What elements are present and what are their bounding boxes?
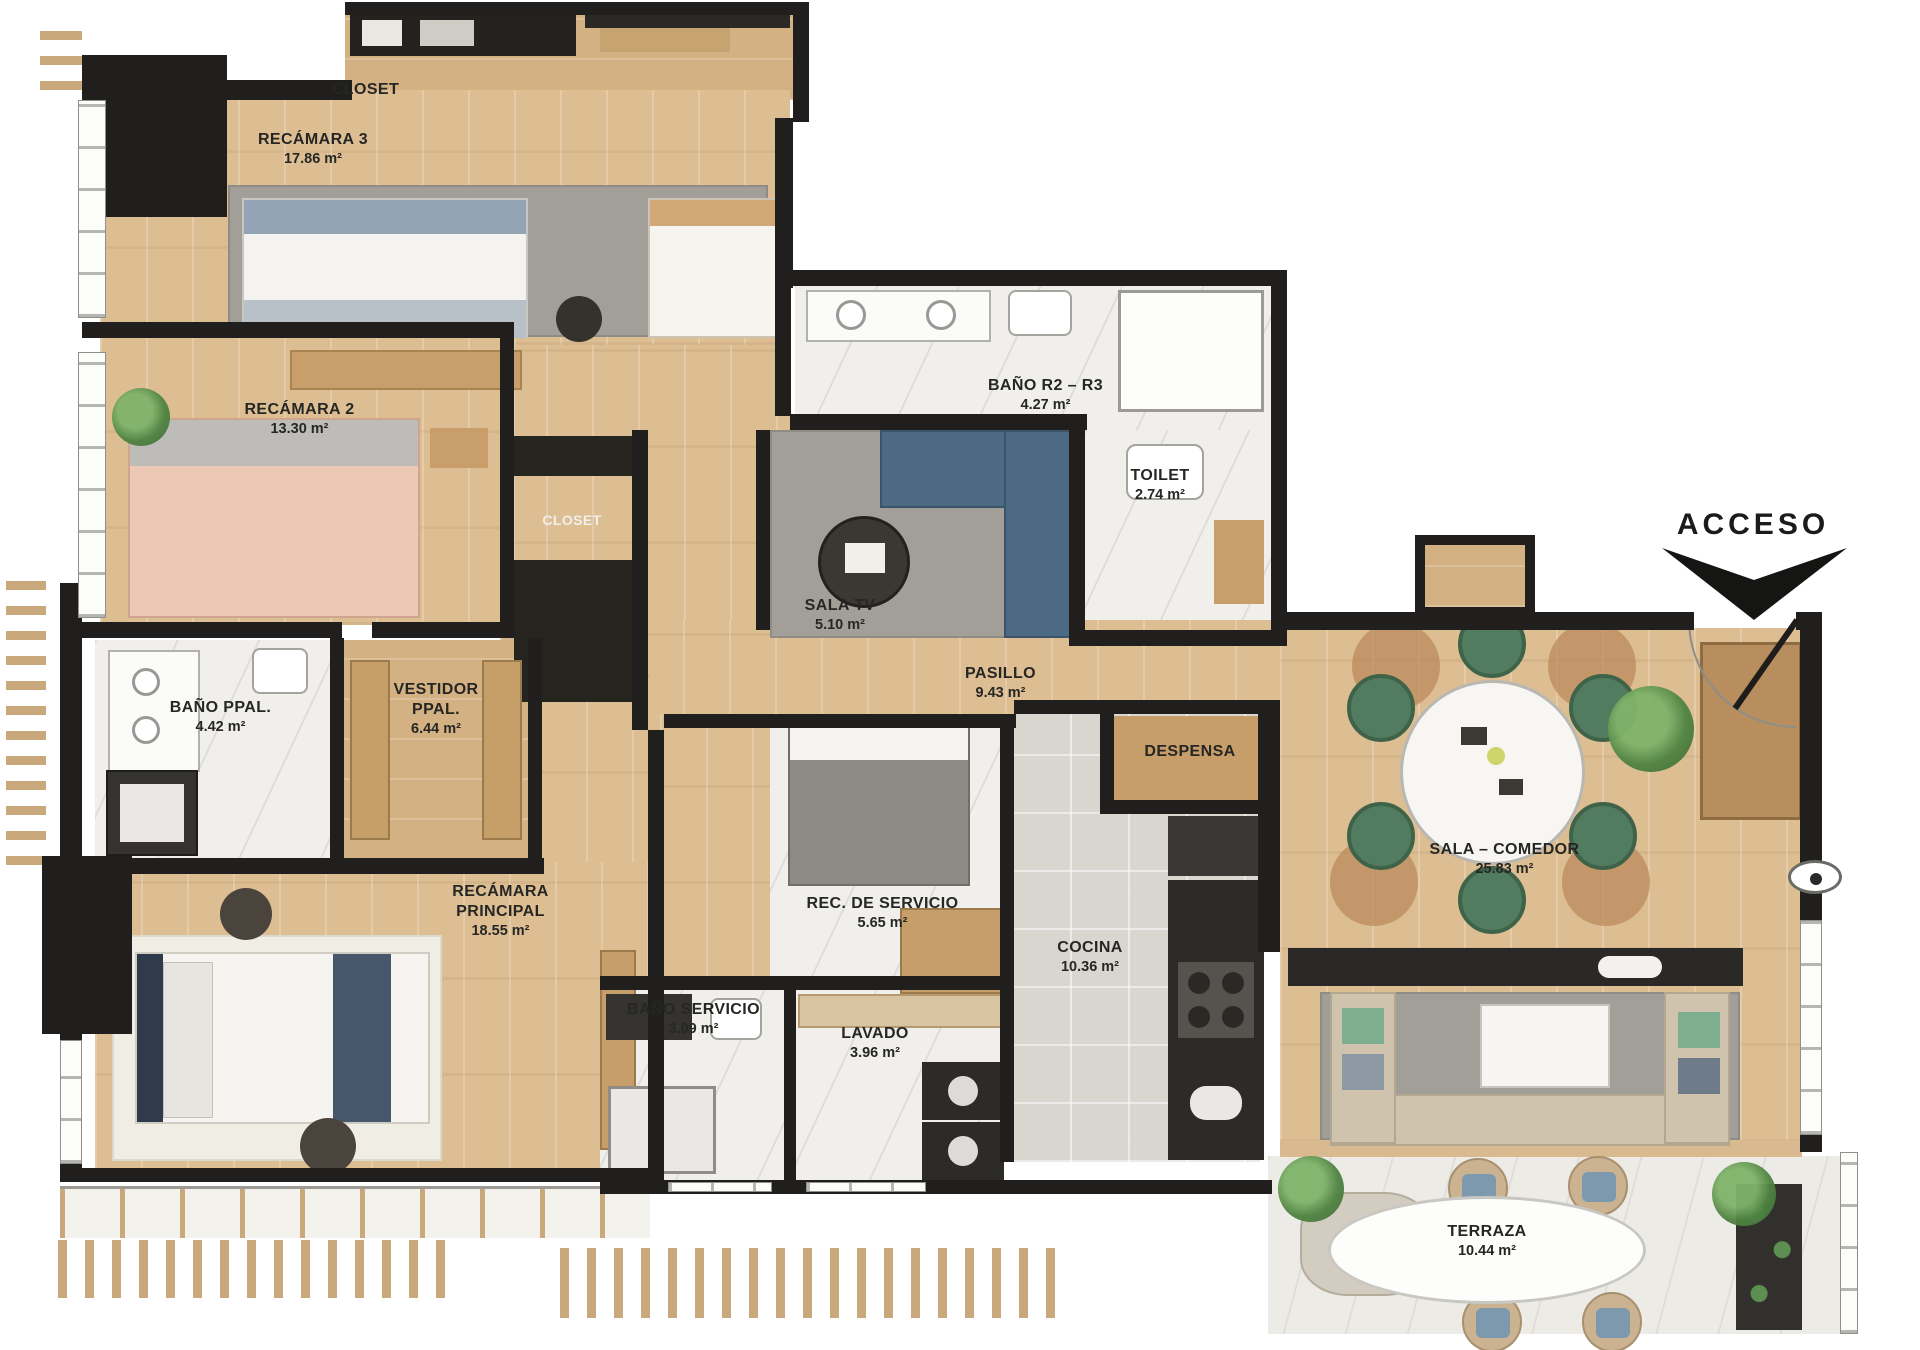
room-name: TOILET: [1131, 466, 1190, 486]
headboard: [244, 200, 526, 234]
room-area: 4.27 m²: [1021, 397, 1071, 413]
pillow: [1342, 1054, 1384, 1090]
headboard: [137, 954, 163, 1122]
wall: [1069, 430, 1085, 646]
entry-bench: [1425, 545, 1525, 607]
label-closet-r3: CLOSET: [318, 80, 413, 100]
pergola-slats-left: [6, 575, 46, 865]
room-area: 25.83 m²: [1475, 861, 1533, 877]
washer: [922, 1062, 1004, 1120]
sink-basin: [926, 300, 956, 330]
label-cocina: COCINA 10.36 m²: [1014, 938, 1166, 975]
label-pasillo: PASILLO 9.43 m²: [928, 664, 1073, 701]
window-recamara-ppal: [60, 1040, 82, 1164]
bed-recamara2: [128, 418, 420, 618]
closet-r2-shelf: [514, 436, 632, 476]
chair-cushion: [1596, 1308, 1630, 1338]
room-name: REC. DE SERVICIO: [807, 894, 959, 914]
room-name: COCINA: [1057, 938, 1123, 958]
room-area: 5.10 m²: [815, 617, 865, 633]
label-toilet: TOILET 2.74 m²: [1095, 466, 1225, 503]
plant-icon: [1608, 686, 1694, 772]
pillows: [163, 962, 213, 1118]
tv-wall: [756, 430, 770, 630]
window-terraza: [1840, 1152, 1858, 1334]
sofa-right-arm: [1664, 992, 1730, 1144]
label-rec-servicio: REC. DE SERVICIO 5.65 m²: [795, 894, 970, 931]
wc-r2r3: [1008, 290, 1072, 336]
label-recamara3: RECÁMARA 3 17.86 m²: [228, 130, 398, 167]
dryer: [922, 1122, 1004, 1180]
room-name: BAÑO PPAL.: [170, 698, 271, 718]
sofa-left-arm: [1330, 992, 1396, 1144]
wall: [372, 622, 514, 638]
wall: [793, 2, 809, 122]
window-lavado: [806, 1182, 926, 1192]
room-name: BAÑO R2 – R3: [988, 376, 1103, 396]
cooktop: [1178, 962, 1254, 1038]
label-closet-r2: CLOSET: [512, 512, 632, 530]
media-console: [1288, 948, 1743, 986]
wall: [790, 270, 1287, 286]
table-setting: [1499, 779, 1523, 795]
room-name: DESPENSA: [1144, 742, 1235, 762]
chair-cushion: [1582, 1172, 1616, 1202]
service-hall-floor: [660, 714, 772, 980]
wall: [500, 338, 514, 625]
label-bano-r2r3: BAÑO R2 – R3 4.27 m²: [948, 376, 1143, 413]
wall: [1258, 700, 1280, 952]
room-area: 6.44 m²: [411, 721, 461, 737]
label-recamara-ppal: RECÁMARA PRINCIPAL 18.55 m²: [418, 882, 583, 939]
washer-door: [948, 1076, 978, 1106]
viewer-icon: [1788, 860, 1842, 894]
toilet-shelf: [1214, 520, 1264, 604]
acceso-arrow-icon: [1662, 548, 1847, 620]
pillow: [1678, 1058, 1720, 1094]
dryer-door: [948, 1136, 978, 1166]
room-name: CLOSET: [542, 512, 601, 530]
plant-icon: [1712, 1162, 1776, 1226]
bedroom-balcony: [60, 1186, 650, 1238]
bed-principal: [135, 952, 430, 1124]
terraza-chair: [1582, 1292, 1642, 1350]
viewer-dot: [1810, 873, 1822, 885]
wall: [784, 990, 796, 1186]
room-name: RECÁMARA 3: [258, 130, 368, 150]
burner: [1222, 972, 1244, 994]
room-name: VESTIDOR PPAL.: [372, 680, 500, 720]
wall: [600, 976, 1014, 990]
window-recamara2: [78, 352, 106, 618]
label-recamara2: RECÁMARA 2 13.30 m²: [222, 400, 377, 437]
wall: [82, 322, 514, 338]
floor-plan: ACCESO CLOSET RECÁMARA 3 17.86 m² RECÁMA…: [0, 0, 1920, 1350]
bed-throw: [333, 954, 391, 1122]
room-name: SALA TV: [805, 596, 876, 616]
wall: [775, 118, 793, 288]
room-area: 10.36 m²: [1061, 959, 1119, 975]
wall: [648, 730, 664, 1186]
nightstand-round: [220, 888, 272, 940]
window-sala: [1800, 920, 1822, 1135]
sink-basin: [132, 668, 160, 696]
wall: [42, 856, 132, 1034]
room-name: BAÑO SERVICIO: [627, 1000, 760, 1020]
pergola-slats-bottom-left: [58, 1240, 456, 1298]
bed-recamara3: [242, 198, 528, 338]
label-vestidor: VESTIDOR PPAL. 6.44 m²: [372, 680, 500, 737]
room-name: CLOSET: [332, 80, 399, 100]
wall: [790, 414, 1087, 430]
wall: [82, 858, 544, 874]
pillow: [1678, 1012, 1720, 1048]
dining-table: [1400, 680, 1585, 865]
window-recamara3: [78, 100, 106, 318]
chair-cushion: [1476, 1308, 1510, 1338]
label-bano-servicio: BAÑO SERVICIO 3.09 m²: [616, 1000, 771, 1037]
shower-floor: [120, 784, 184, 842]
table-centerpiece: [1487, 747, 1505, 765]
wall: [1271, 270, 1287, 646]
wall: [528, 638, 542, 864]
table-decor: [845, 543, 885, 573]
label-terraza: TERRAZA 10.44 m²: [1392, 1222, 1582, 1259]
sink-basin: [836, 300, 866, 330]
laundry-counter: [798, 994, 1004, 1028]
acceso-label: ACCESO: [1648, 508, 1858, 542]
plant-icon: [112, 388, 170, 446]
room-area: 9.43 m²: [976, 685, 1026, 701]
vanity-r2r3: [806, 290, 991, 342]
closet-shelf-item: [362, 20, 402, 46]
kitchen-sink: [1190, 1086, 1242, 1120]
wall: [664, 714, 1016, 728]
label-despensa: DESPENSA: [1115, 742, 1265, 762]
plant-icon: [1278, 1156, 1344, 1222]
wall: [1100, 800, 1272, 814]
shower-ppal: [106, 770, 198, 856]
dining-chair: [1347, 674, 1415, 742]
wall: [1100, 700, 1114, 812]
bed-recamara3-b: [648, 198, 788, 338]
room-area: 3.09 m²: [669, 1021, 719, 1037]
fridge: [1168, 816, 1264, 876]
headboard: [650, 200, 786, 226]
desk-recamara2: [290, 350, 522, 390]
window-bano-servicio: [668, 1182, 772, 1192]
label-sala-tv: SALA TV 5.10 m²: [775, 596, 905, 633]
burner: [1188, 1006, 1210, 1028]
nightstand: [430, 428, 488, 468]
room-name: PASILLO: [965, 664, 1036, 684]
wall: [82, 622, 342, 638]
burner: [1222, 1006, 1244, 1028]
pergola-slats-bottom-mid: [560, 1248, 1060, 1318]
console-decor: [1598, 956, 1662, 978]
nightstand-round: [300, 1118, 356, 1174]
label-sala-comedor: SALA – COMEDOR 25.83 m²: [1372, 840, 1637, 877]
room-area: 2.74 m²: [1135, 487, 1185, 503]
room-area: 17.86 m²: [284, 151, 342, 167]
closet-rod: [585, 14, 790, 28]
label-bano-ppal: BAÑO PPAL. 4.42 m²: [138, 698, 303, 735]
table-setting: [1461, 727, 1487, 745]
pouf: [556, 296, 602, 342]
pillow: [790, 724, 968, 760]
room-name: TERRAZA: [1447, 1222, 1526, 1242]
burner: [1188, 972, 1210, 994]
room-area: 4.42 m²: [196, 719, 246, 735]
wall: [60, 1168, 652, 1182]
wall: [345, 2, 807, 15]
room-area: 13.30 m²: [270, 421, 328, 437]
wall: [1000, 714, 1014, 1162]
kitchen-counter: [1168, 880, 1264, 1160]
bed-servicio: [788, 722, 970, 886]
room-area: 3.96 m²: [850, 1045, 900, 1061]
room-area: 18.55 m²: [471, 923, 529, 939]
coffee-table-tv: [818, 516, 910, 608]
wall: [1014, 700, 1272, 714]
room-name: RECÁMARA 2: [244, 400, 354, 420]
label-lavado: LAVADO 3.96 m²: [805, 1024, 945, 1061]
room-area: 5.65 m²: [858, 915, 908, 931]
wall: [330, 638, 344, 864]
room-area: 10.44 m²: [1458, 1243, 1516, 1259]
hanging-clothes: [600, 28, 730, 52]
pillow: [1342, 1008, 1384, 1044]
coffee-table: [1480, 1004, 1610, 1088]
room-name: LAVADO: [841, 1024, 909, 1044]
wall: [632, 430, 648, 730]
wall: [775, 286, 791, 416]
wc-ppal: [252, 648, 308, 694]
room-name: RECÁMARA PRINCIPAL: [418, 882, 583, 922]
wall: [1069, 630, 1287, 646]
room-name: SALA – COMEDOR: [1430, 840, 1580, 860]
closet-shelf-item: [420, 20, 474, 46]
pergola-slats-topleft: [40, 28, 82, 90]
